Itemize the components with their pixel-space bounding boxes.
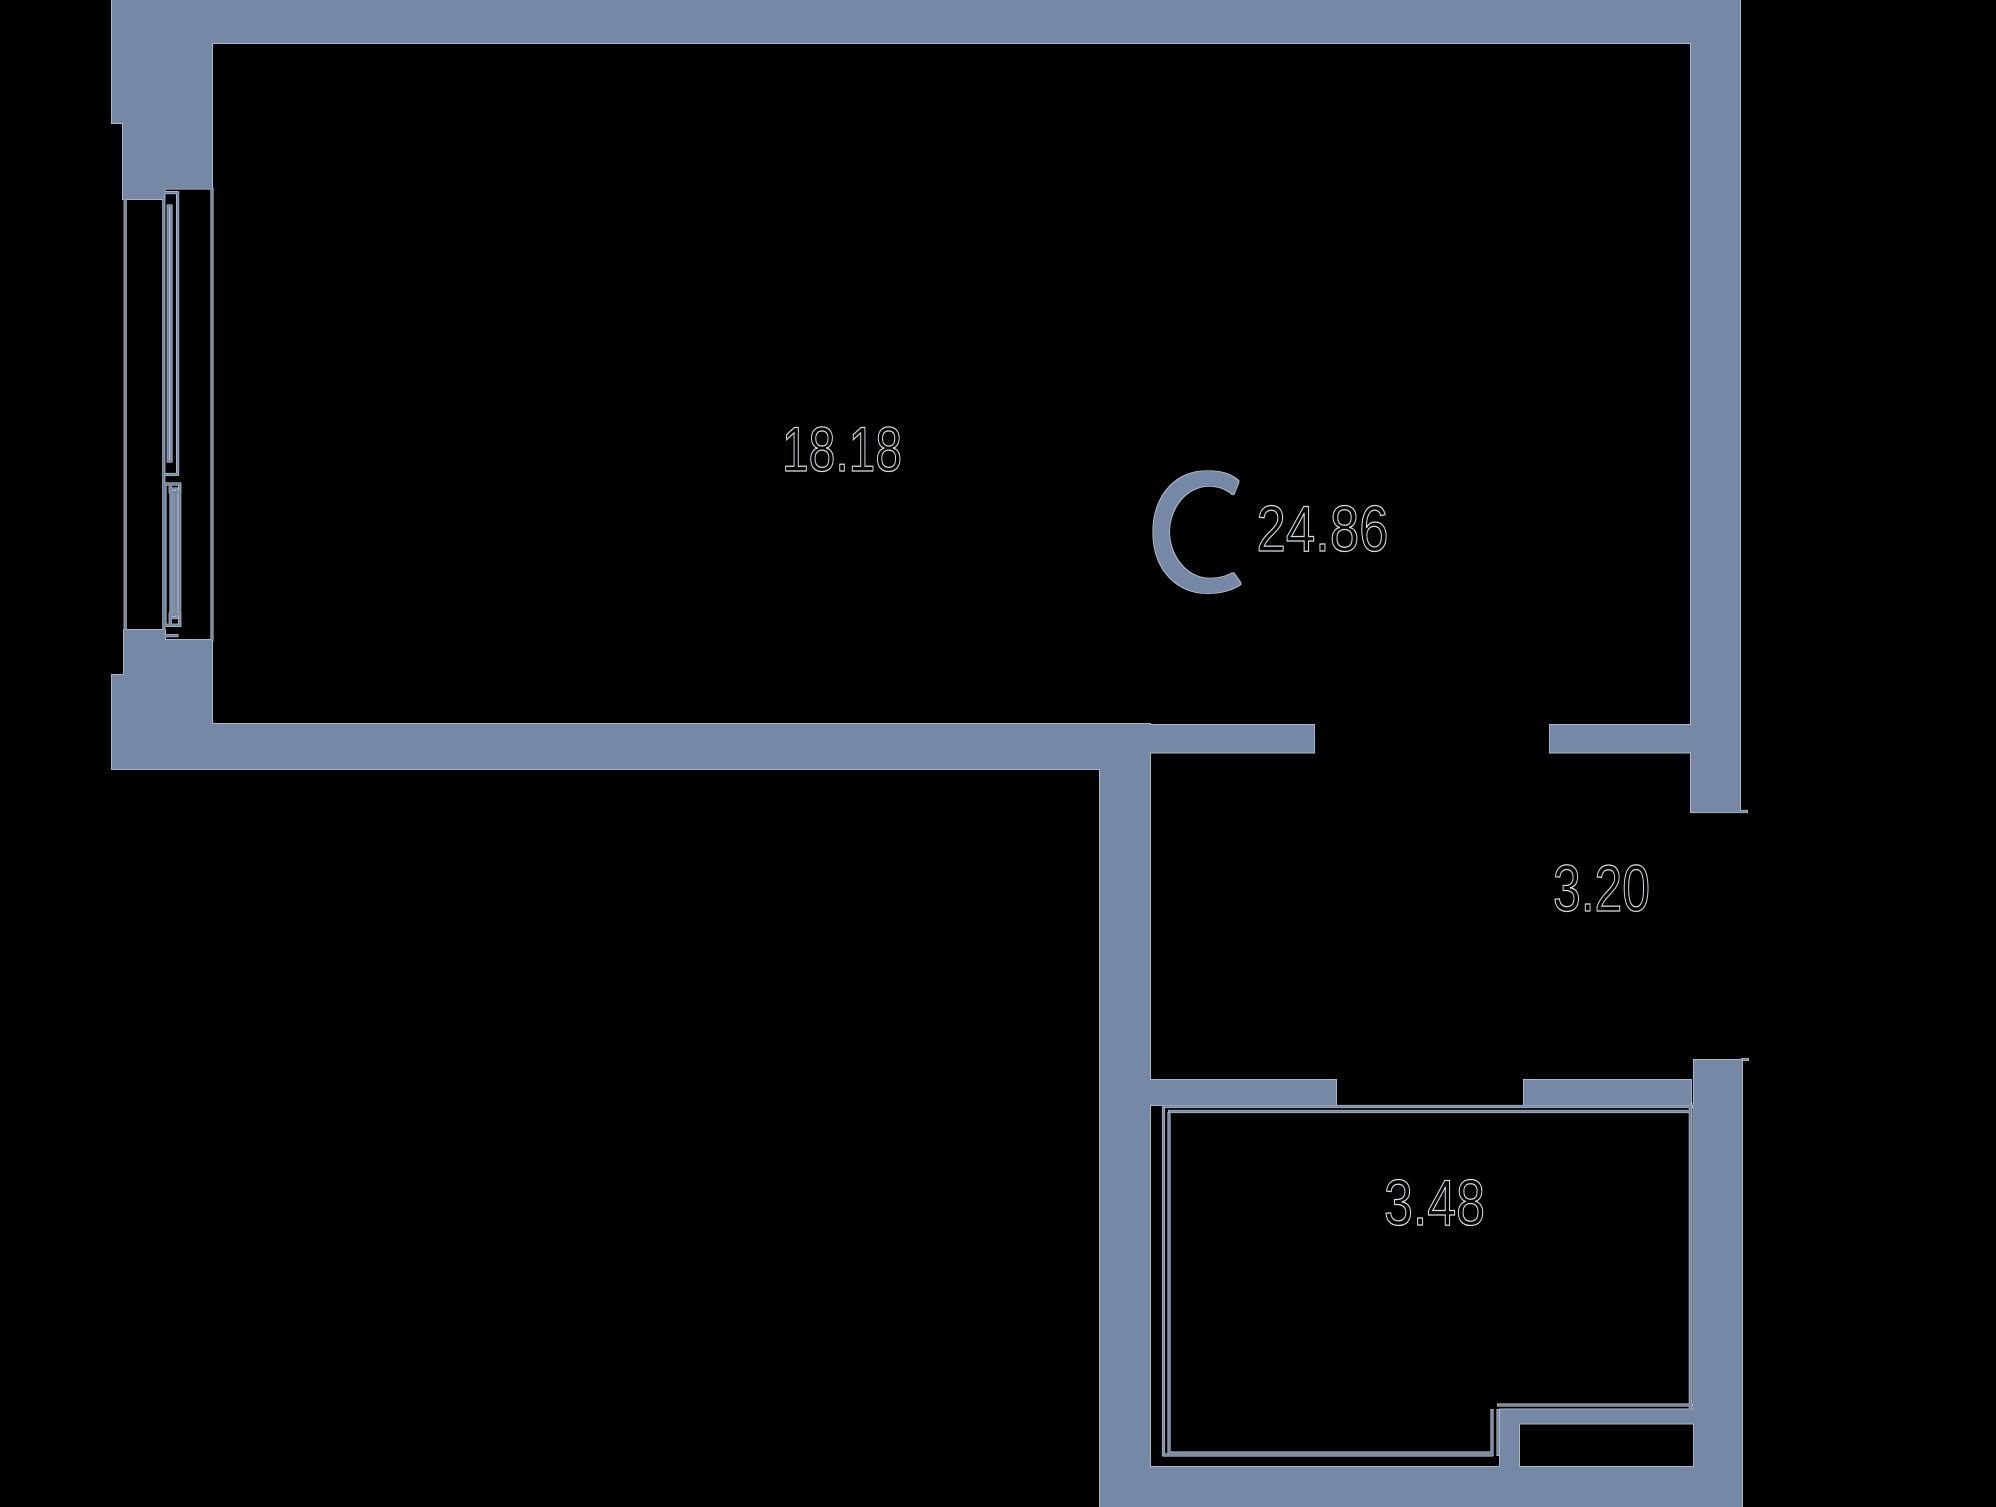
svg-text:24.86: 24.86 bbox=[1257, 492, 1389, 565]
svg-text:18.18: 18.18 bbox=[782, 415, 902, 485]
svg-text:3.20: 3.20 bbox=[1553, 851, 1650, 925]
svg-text:3.48: 3.48 bbox=[1384, 1166, 1485, 1239]
